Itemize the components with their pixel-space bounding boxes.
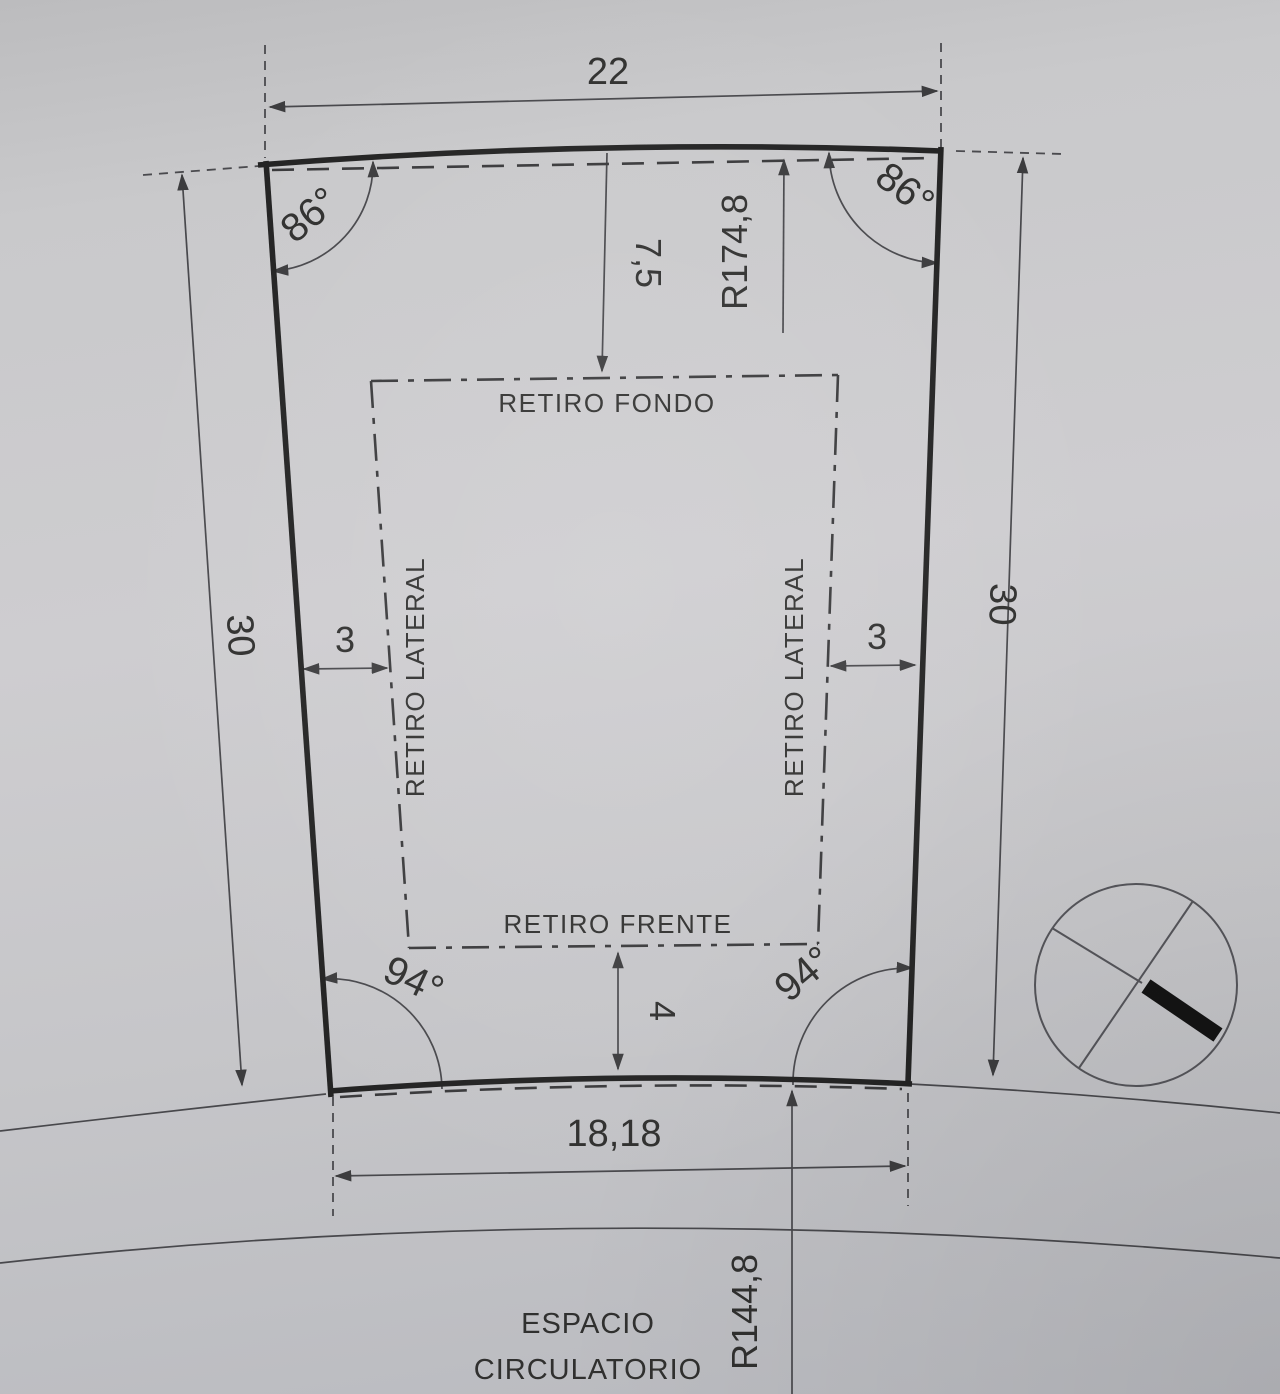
north-symbol-needle (1146, 986, 1218, 1035)
setback-line-front (409, 944, 818, 948)
label-road-line2: CIRCULATORIO (474, 1354, 702, 1386)
road-edge-outer-left (0, 1094, 326, 1131)
road-edge-outer-right (910, 1084, 1280, 1113)
dim-radius-back: R174,8 (714, 194, 755, 310)
dim-radius-front: R144,8 (724, 1254, 765, 1370)
dim-side-setback-right: 3 (867, 616, 887, 657)
dim-top-width: 22 (587, 51, 629, 93)
dim-side-setback-left: 3 (335, 619, 355, 660)
north-symbol-axis-2 (1052, 928, 1142, 983)
plan-sheet: 22 86° 86° 94° 94° 7,5 R174,8 RETIRO FON… (0, 0, 1280, 1394)
angle-top-right: 86° (867, 154, 942, 226)
label-retiro-fondo: RETIRO FONDO (498, 388, 715, 418)
setback-outline (371, 375, 838, 948)
dim-line-top-width (270, 91, 937, 107)
dim-depth-right: 30 (980, 583, 1023, 627)
ext-line-right-corner (956, 151, 1063, 154)
label-retiro-frente: RETIRO FRENTE (504, 909, 733, 939)
dim-line-radius-back (783, 160, 784, 333)
road-edges (0, 1084, 1280, 1263)
road-edge-inner (0, 1228, 1280, 1263)
annotations: 22 86° 86° 94° 94° 7,5 R174,8 RETIRO FON… (218, 51, 1024, 1386)
dim-front-width: 18,18 (566, 1113, 661, 1155)
label-retiro-lateral-right: RETIRO LATERAL (779, 557, 809, 797)
lot-edge-back (258, 147, 941, 165)
angle-arcs (273, 153, 937, 1089)
lot-edge-right (908, 147, 941, 1083)
north-symbol-axis-1 (1079, 901, 1193, 1068)
dim-back-setback: 7,5 (628, 238, 669, 288)
label-retiro-lateral-left: RETIRO LATERAL (400, 557, 430, 797)
dim-line-front-width (336, 1166, 905, 1176)
setback-line-back (371, 375, 838, 381)
label-road-line1: ESPACIO (521, 1308, 655, 1340)
lot-boundary (258, 147, 941, 1097)
angle-top-left: 86° (272, 179, 347, 252)
dim-line-side-setback-left (304, 668, 387, 669)
setback-line-right (818, 375, 838, 944)
north-symbol (1035, 884, 1237, 1086)
lot-edge-front (330, 1078, 912, 1091)
dim-line-side-setback-right (831, 665, 915, 666)
ext-line-left-corner (143, 166, 259, 175)
site-plan-drawing: 22 86° 86° 94° 94° 7,5 R174,8 RETIRO FON… (0, 0, 1280, 1394)
angle-bottom-left: 94° (377, 947, 450, 1012)
dim-front-setback: 4 (642, 1001, 683, 1021)
dim-line-back-setback (602, 153, 607, 371)
dim-depth-left: 30 (218, 613, 262, 657)
lot-edge-left (266, 161, 331, 1097)
